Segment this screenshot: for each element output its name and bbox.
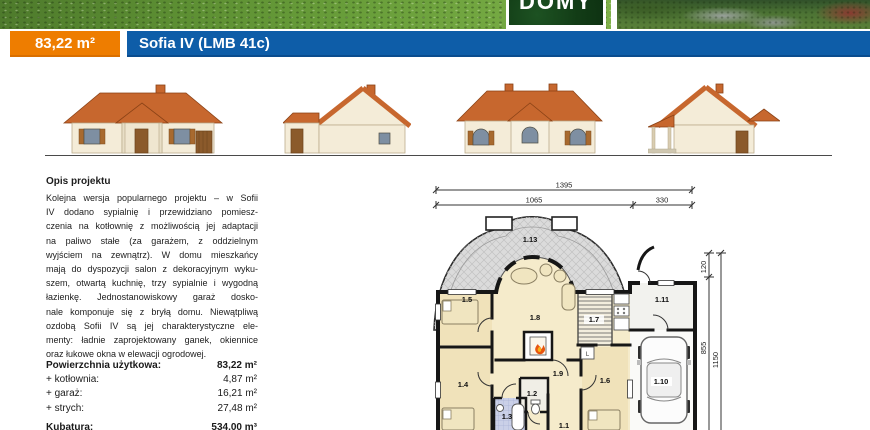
fireplace-icon xyxy=(524,332,552,360)
room-label: 1.11 xyxy=(655,295,669,304)
window xyxy=(448,290,476,295)
header-photo-garden xyxy=(617,0,870,29)
area-label: + kotłownia: xyxy=(46,374,99,385)
description-line: na paliwo stałe (za garażem, z oddzielny… xyxy=(46,234,258,248)
area-value: 16,21 m² xyxy=(218,388,257,399)
dim-side-total: 1150 xyxy=(711,352,720,368)
description-line: szem, otwartą kuchnię, trzy sypialnie i … xyxy=(46,276,258,290)
window xyxy=(436,304,441,320)
table-row: + garaż: 16,21 m² xyxy=(46,387,257,401)
armchair xyxy=(554,270,566,282)
window xyxy=(628,380,633,398)
area-label: Powierzchnia użytkowa: xyxy=(46,360,161,371)
dim-main-width: 1065 xyxy=(526,196,543,205)
elevation-front xyxy=(58,83,228,156)
elevation-garden xyxy=(453,83,606,156)
dim-front: 120 xyxy=(699,261,708,274)
coffee-table xyxy=(511,268,537,284)
project-title-badge: Sofia IV (LMB 41c) xyxy=(127,31,870,57)
armchair xyxy=(540,264,552,276)
floor-plan: 1395 1065 330 xyxy=(428,180,748,430)
description-line: nale komponuje się z bryłą domu. Niewątp… xyxy=(46,305,258,319)
elevation-side-right xyxy=(648,83,780,156)
bathtub xyxy=(512,404,524,430)
area-value: 534,00 m³ xyxy=(211,422,257,430)
area-value: 83,22 m² xyxy=(217,360,257,371)
dim-garage-width: 330 xyxy=(656,196,669,205)
area-badge: 83,22 m² xyxy=(10,31,120,57)
side-porch-wall xyxy=(638,247,654,270)
area-value: 4,87 m² xyxy=(223,374,257,385)
project-title: Sofia IV (LMB 41c) xyxy=(139,35,270,52)
description-line: mają do dyspozycji salon z dekoracyjnym … xyxy=(46,262,258,276)
toilet xyxy=(531,400,540,414)
room-label: 1.6 xyxy=(600,376,610,385)
area-value: 27,48 m² xyxy=(218,403,257,414)
room-label: 1.8 xyxy=(530,313,540,322)
room-label: 1.13 xyxy=(523,235,538,244)
brochure-page: DOMY 83,22 m² Sofia IV (LMB 41c) xyxy=(0,0,870,430)
room-label: 1.7 xyxy=(589,315,599,324)
areas-table: Powierzchnia użytkowa: 83,22 m² + kotłow… xyxy=(46,358,257,416)
room-label: 1.2 xyxy=(527,389,537,398)
description-line: łazienkę. Jednostanowiskowy garaż dosko- xyxy=(46,290,258,304)
dimension-line-top: 1395 1065 330 xyxy=(433,181,695,210)
bed xyxy=(442,300,478,324)
description-line: czenia na kotłownię z możliwością jej ad… xyxy=(46,219,258,233)
description-heading: Opis projektu xyxy=(46,176,258,187)
description-line: ozdobą Sofii IV są jej charakterystyczne… xyxy=(46,319,258,333)
table-row: + strych: 27,48 m² xyxy=(46,401,257,415)
area-label: Kubatura: xyxy=(46,422,93,430)
area-label: + strych: xyxy=(46,403,84,414)
table-row: + kotłownia: 4,87 m² xyxy=(46,372,257,386)
dim-side: 855 xyxy=(699,342,708,355)
kitchen-counter xyxy=(614,294,629,304)
room-label: 1.5 xyxy=(462,295,472,304)
room-label: 1.9 xyxy=(553,369,563,378)
description-line: menty: ładnie zaprojektowany ganek, okie… xyxy=(46,333,258,347)
porch-pillar xyxy=(552,217,577,230)
description-line: Kolejna wersja popularnego projektu – w … xyxy=(46,191,258,205)
dim-total-width: 1395 xyxy=(556,181,573,190)
project-description: Opis projektu Kolejna wersja popularnego… xyxy=(46,176,258,361)
room-label: 1.10 xyxy=(654,377,669,386)
window xyxy=(658,281,674,286)
description-line: wyjściem na zewnątrz). W domu mieszkańcy xyxy=(46,248,258,262)
brand-logo: DOMY xyxy=(506,0,606,29)
cooktop xyxy=(614,306,629,316)
room-label: 1.3 xyxy=(502,412,512,421)
table-row: Powierzchnia użytkowa: 83,22 m² xyxy=(46,358,257,372)
room-label: 1.4 xyxy=(458,380,469,389)
elevation-side-left xyxy=(283,83,411,156)
bed xyxy=(588,410,620,430)
kitchen-sink xyxy=(614,318,629,330)
sink xyxy=(497,405,504,412)
fridge: L xyxy=(581,347,594,359)
description-line: IV dodano sypialnię i przewidziano pomie… xyxy=(46,205,258,219)
porch-pillar xyxy=(486,217,512,230)
window xyxy=(436,382,441,398)
boiler-floor xyxy=(630,283,695,330)
sofa xyxy=(562,284,575,310)
dimension-line-right: 120 855 1150 xyxy=(699,250,726,430)
bed xyxy=(442,408,474,430)
brand-logo-text: DOMY xyxy=(519,0,593,25)
elevation-ground-line xyxy=(45,155,832,157)
header-photo-strip: DOMY xyxy=(0,0,870,29)
kubatura-row: Kubatura: 534,00 m³ xyxy=(46,422,257,430)
window xyxy=(586,290,614,295)
area-label: + garaż: xyxy=(46,388,82,399)
room-label: 1.1 xyxy=(559,421,569,430)
